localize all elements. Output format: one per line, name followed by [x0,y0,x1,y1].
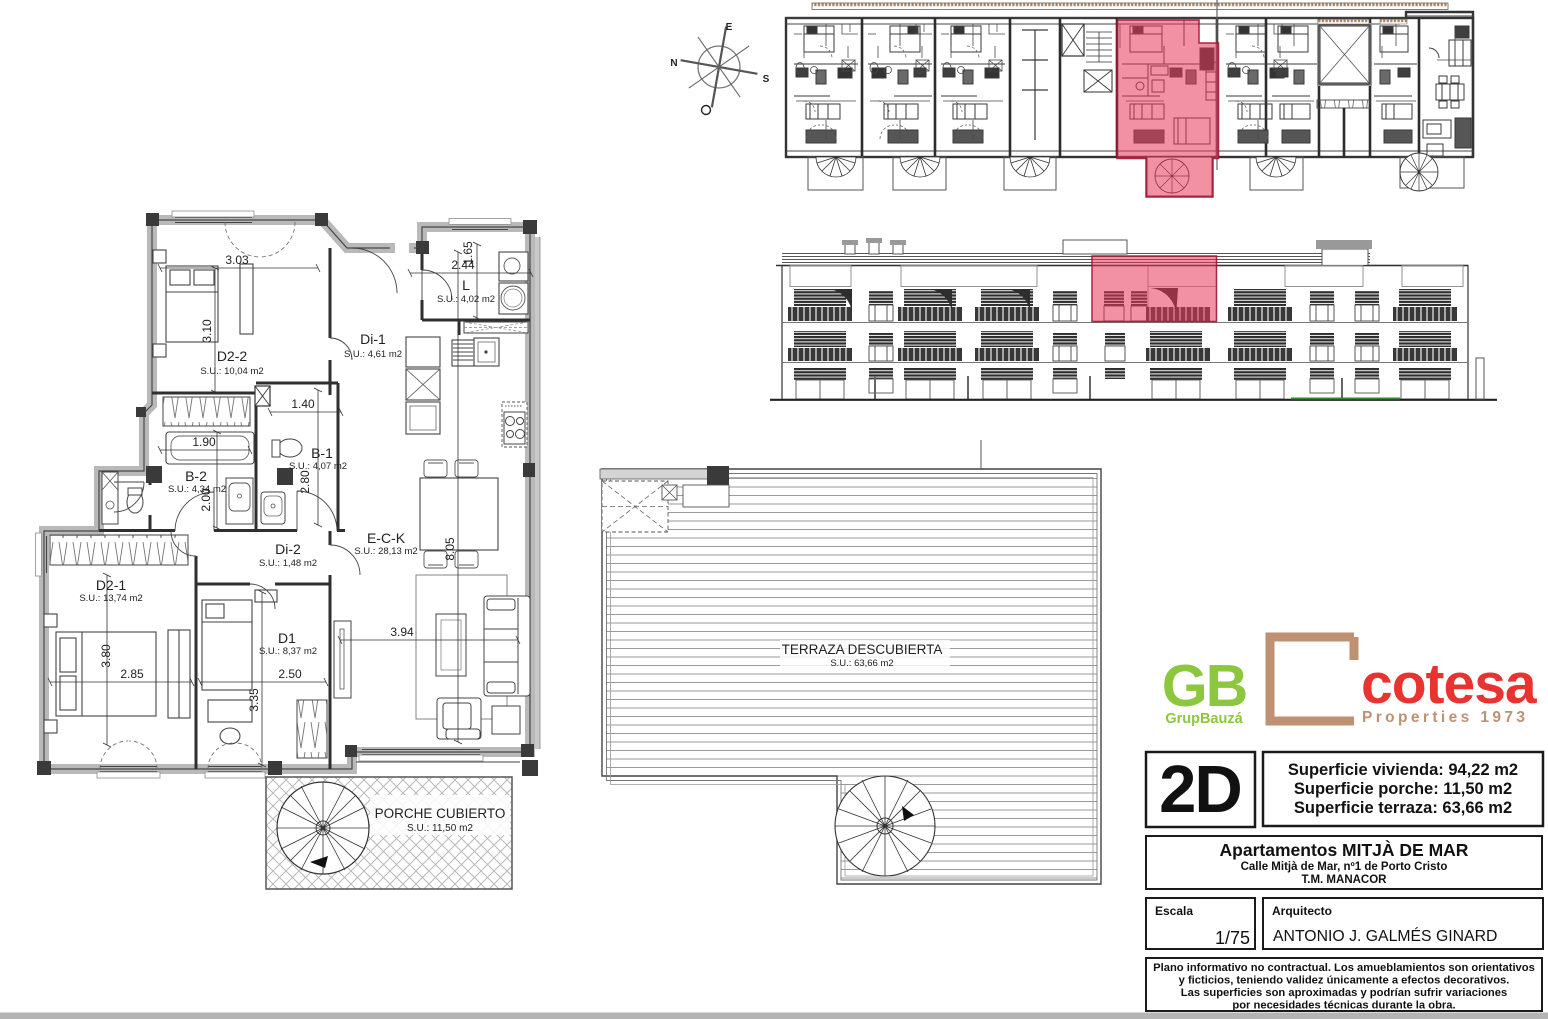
svg-text:por necesidades técnicas duran: por necesidades técnicas durante la obra… [1232,1000,1455,1012]
svg-text:PORCHE CUBIERTO: PORCHE CUBIERTO [375,806,506,821]
svg-text:S.U.: 10,04 m2: S.U.: 10,04 m2 [200,366,263,377]
svg-text:3.10: 3.10 [200,319,214,343]
svg-text:S.U.: 1,48 m2: S.U.: 1,48 m2 [259,558,317,569]
svg-text:Plano informativo no contractu: Plano informativo no contractual. Los am… [1153,962,1535,974]
svg-text:3.94: 3.94 [390,625,414,639]
svg-text:B-1: B-1 [311,445,333,461]
svg-text:S.U.: 4,61 m2: S.U.: 4,61 m2 [344,349,402,360]
svg-text:D2-1: D2-1 [96,577,127,593]
svg-text:N: N [670,58,677,69]
svg-text:Superficie vivienda: 94,22 m2: Superficie vivienda: 94,22 m2 [1288,761,1518,779]
svg-text:TERRAZA DESCUBIERTA: TERRAZA DESCUBIERTA [782,642,943,657]
svg-text:T.M. MANACOR: T.M. MANACOR [1302,874,1388,886]
svg-text:Superficie porche: 11,50 m2: Superficie porche: 11,50 m2 [1294,780,1512,798]
svg-text:D1: D1 [278,630,296,646]
svg-text:Di-2: Di-2 [275,541,301,557]
svg-text:8.05: 8.05 [443,537,457,561]
svg-text:B-2: B-2 [185,468,207,484]
svg-text:1.40: 1.40 [291,397,315,411]
svg-text:1.90: 1.90 [192,435,216,449]
svg-text:Calle Mitjà de Mar, nº1 de Por: Calle Mitjà de Mar, nº1 de Porto Cristo [1241,861,1448,873]
svg-text:2D: 2D [1159,752,1241,827]
svg-text:E: E [726,22,733,33]
svg-text:S.U.: 13,74 m2: S.U.: 13,74 m2 [79,593,142,604]
svg-text:S.U.: 4,07 m2: S.U.: 4,07 m2 [289,461,347,472]
svg-text:3.35: 3.35 [247,688,261,712]
svg-text:Superficie terraza: 63,66 m2: Superficie terraza: 63,66 m2 [1294,799,1512,817]
svg-text:1/75: 1/75 [1215,928,1250,948]
svg-text:S.U.: 4,02 m2: S.U.: 4,02 m2 [437,294,495,305]
svg-text:Las superficies son aproximada: Las superficies son aproximadas y podría… [1181,987,1507,999]
svg-text:2.85: 2.85 [120,667,144,681]
svg-text:Di-1: Di-1 [360,331,386,347]
svg-text:S: S [763,74,770,85]
svg-text:L: L [462,277,470,293]
svg-text:3.03: 3.03 [225,253,249,267]
svg-text:2.80: 2.80 [298,470,312,494]
svg-text:S.U.: 4,34 m2: S.U.: 4,34 m2 [168,484,226,495]
svg-text:ANTONIO J. GALMÉS GINARD: ANTONIO J. GALMÉS GINARD [1273,926,1497,945]
svg-text:S.U.: 8,37 m2: S.U.: 8,37 m2 [259,646,317,657]
svg-text:S.U.: 28,13 m2: S.U.: 28,13 m2 [354,546,417,557]
svg-text:2.50: 2.50 [278,667,302,681]
svg-text:y ficticios, teniendo validez: y ficticios, teniendo validez únicamente… [1179,975,1510,987]
svg-text:3.80: 3.80 [99,644,113,668]
svg-text:Arquitecto: Arquitecto [1272,904,1332,918]
svg-text:1.65: 1.65 [461,241,475,265]
svg-text:GB: GB [1162,653,1247,719]
svg-text:D2-2: D2-2 [217,348,248,364]
svg-text:Apartamentos MITJÀ DE MAR: Apartamentos MITJÀ DE MAR [1220,839,1469,860]
svg-text:S.U.: 63,66 m2: S.U.: 63,66 m2 [830,658,893,669]
svg-text:S.U.: 11,50 m2: S.U.: 11,50 m2 [407,823,473,834]
svg-text:GrupBauzá: GrupBauzá [1165,711,1243,727]
svg-text:cotesa: cotesa [1361,652,1538,716]
svg-text:E-C-K: E-C-K [367,530,406,546]
svg-text:Properties 1973: Properties 1973 [1362,709,1528,726]
svg-text:Escala: Escala [1155,904,1193,918]
